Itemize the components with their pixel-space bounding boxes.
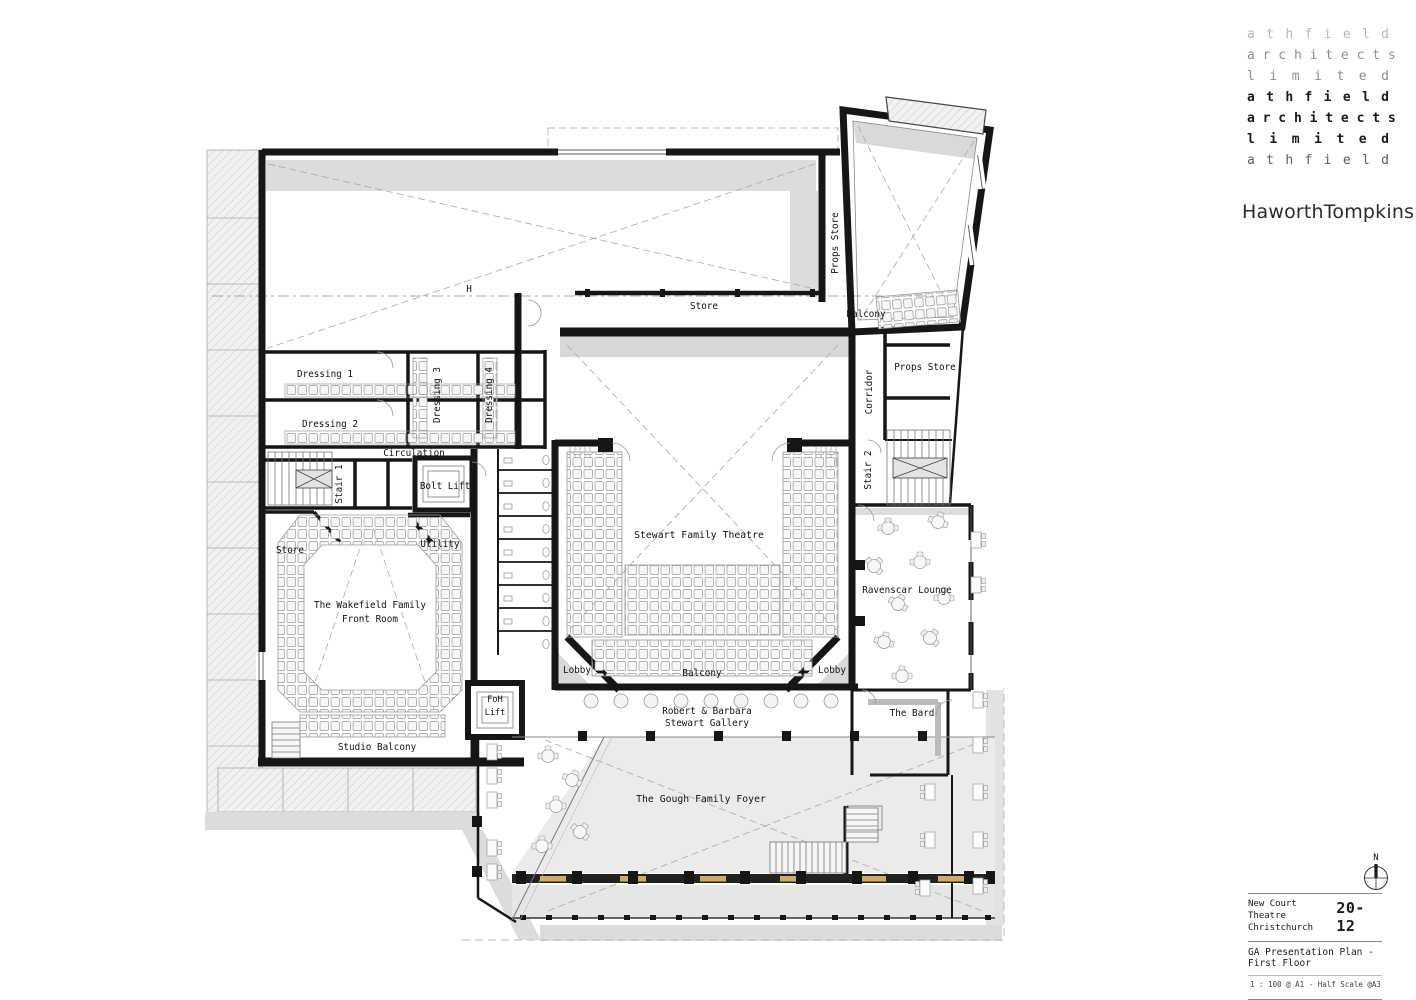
room-label-lobby-left: Lobby	[563, 665, 591, 676]
athfield-architects-logo: a t h f i e l d a r c h i t e c t s l i …	[1247, 24, 1389, 171]
room-label-balcony-theatre: Balcony	[682, 668, 722, 679]
room-label-lobby-right: Lobby	[818, 665, 846, 676]
project-name: New Court Theatre	[1248, 898, 1336, 922]
haworth-tompkins-logo: HaworthTompkins	[1242, 201, 1392, 223]
room-label-dressing-2: Dressing 2	[302, 419, 358, 430]
logo-line: a t h f i e l d	[1247, 150, 1389, 171]
logo-line: a r c h i t e c t s	[1247, 45, 1389, 66]
room-label-foh-1: FoH	[487, 695, 503, 705]
room-label-circulation: Circulation	[383, 448, 445, 459]
room-label-studio-balcony: Studio Balcony	[338, 742, 417, 753]
room-label-ravenscar: Ravenscar Lounge	[862, 585, 952, 596]
drawing-title: GA Presentation Plan - First Floor	[1248, 942, 1382, 975]
room-label-store-west: Store	[276, 545, 304, 556]
room-label-dressing-4: Dressing 4	[484, 367, 495, 423]
upper-balcony-seating	[876, 290, 960, 329]
room-label-theatre: Stewart Family Theatre	[634, 530, 764, 541]
wc-fixtures	[504, 456, 549, 649]
project-number: 20-12	[1336, 898, 1382, 935]
room-label-gallery-2: Stewart Gallery	[665, 718, 749, 729]
drawing-scale: 1 : 100 @ A1 - Half Scale @A3	[1248, 976, 1382, 999]
stair-2	[887, 430, 950, 505]
room-label-dressing-1: Dressing 1	[297, 369, 353, 380]
room-label-wakefield-1: The Wakefield Family	[314, 600, 426, 611]
room-label-stair-2: Stair 2	[863, 450, 874, 489]
logo-line: a t h f i e l d	[1247, 87, 1389, 108]
logo-line: l i m i t e d	[1247, 66, 1389, 87]
logo-line: l i m i t e d	[1247, 129, 1389, 150]
project-city: Christchurch	[1248, 922, 1336, 934]
room-label-wakefield-2: Front Room	[342, 614, 398, 625]
north-arrow: N	[1356, 850, 1396, 898]
floor-plan-drawing: Dressing 1 Dressing 2 Dressing 3 Dressin…	[0, 0, 1230, 1000]
logo-line: a t h f i e l d	[1247, 24, 1389, 45]
datum-marker-label: H	[466, 284, 472, 295]
room-label-dressing-3: Dressing 3	[432, 367, 443, 423]
studio-balcony-stair	[272, 722, 300, 758]
north-label: N	[1373, 853, 1378, 863]
room-label-store-north: Store	[690, 301, 718, 312]
room-label-utility: Utility	[420, 539, 460, 550]
drawing-sheet: Dressing 1 Dressing 2 Dressing 3 Dressin…	[0, 0, 1416, 1000]
room-label-props-store-tower: Props Store	[830, 212, 841, 274]
room-label-corridor: Corridor	[864, 369, 875, 414]
logo-line: a r c h i t e c t s	[1247, 108, 1389, 129]
room-label-bolt-lift: Bolt Lift	[420, 481, 470, 492]
room-label-gallery-1: Robert & Barbara	[662, 706, 752, 717]
room-label-props-store-east: Props Store	[894, 362, 956, 373]
room-label-stair-1: Stair 1	[334, 464, 345, 503]
room-label-gough-foyer: The Gough Family Foyer	[636, 794, 766, 805]
room-label-the-bard: The Bard	[890, 708, 935, 719]
theatre-seating	[567, 452, 838, 676]
room-label-balcony-upper: Balcony	[846, 309, 886, 320]
room-label-foh-2: Lift	[485, 708, 506, 718]
title-block: New Court Theatre Christchurch 20-12 GA …	[1248, 893, 1382, 1000]
